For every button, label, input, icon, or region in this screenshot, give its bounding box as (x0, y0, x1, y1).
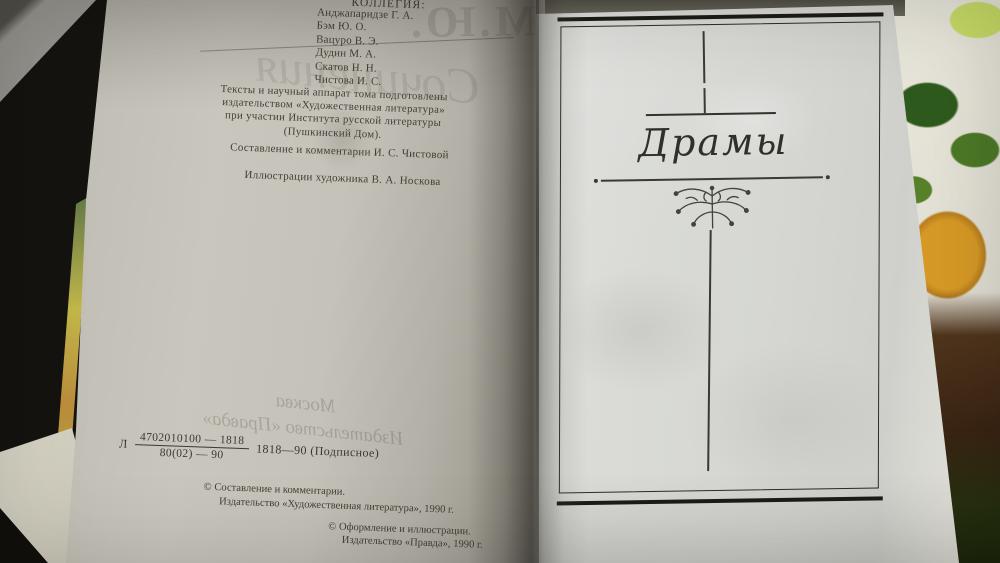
photo-open-book: М.Ю. Сочинения КОЛЛЕГИЯ: Анджапаридзе Г.… (0, 0, 1000, 563)
photo-vignette (0, 0, 1000, 563)
